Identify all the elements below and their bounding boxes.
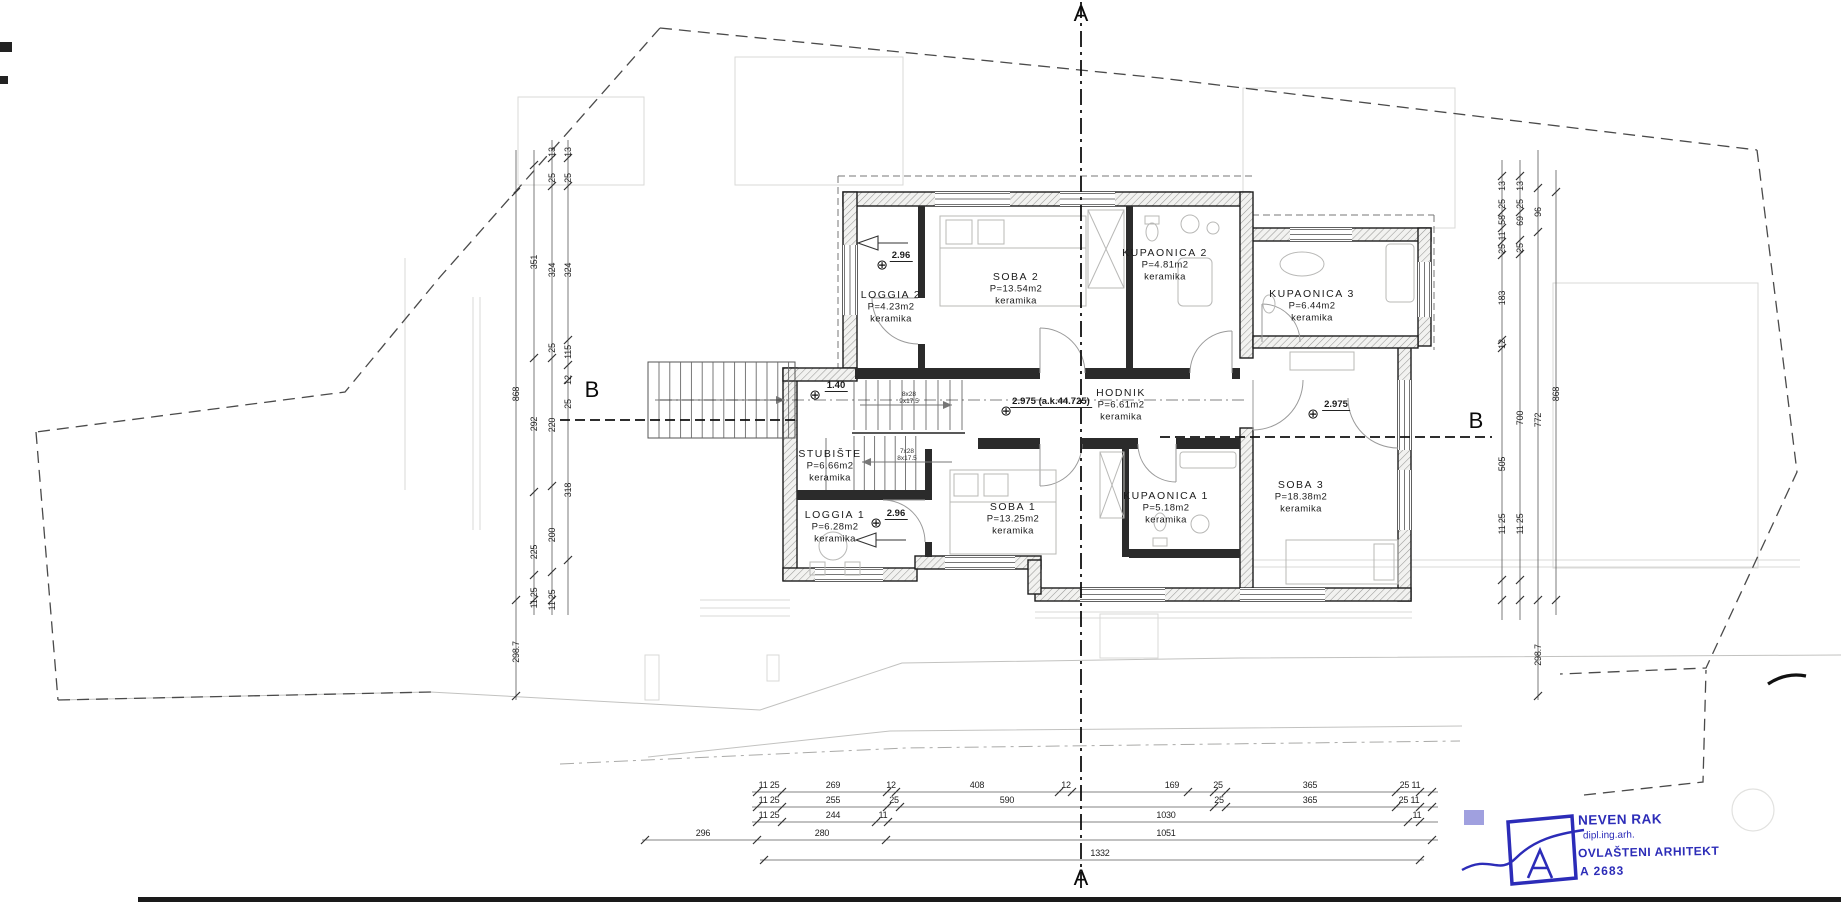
elevation-marker-icon: ⊕ — [809, 387, 821, 404]
room-label-name: KUPAONICA 3 — [1269, 288, 1355, 300]
dimension-value: 11 25 — [759, 810, 780, 820]
dimension-value: 25 — [1515, 243, 1525, 253]
dimension-value: 12 — [1061, 780, 1071, 790]
section-marker-a: A — [1074, 865, 1089, 891]
dimension-value: 200 — [547, 528, 557, 542]
dimension-value: 408 — [970, 780, 984, 790]
room-label-area: P=13.25m2 — [987, 514, 1039, 525]
dimension-value: 365 — [1303, 795, 1317, 805]
stamp-license-title: OVLAŠTENI ARHITEKT — [1578, 844, 1719, 860]
room-label-name: KUPAONICA 1 — [1123, 490, 1209, 502]
dimension-value: 12 — [1497, 339, 1507, 349]
room-label-finish: keramika — [995, 296, 1037, 307]
dimension-value: 269 — [826, 780, 840, 790]
dimension-value: 25 — [1213, 780, 1223, 790]
dimension-value: 700 — [1515, 411, 1525, 425]
section-marker-b: B — [1469, 408, 1484, 434]
room-label-finish: keramika — [1291, 313, 1333, 324]
room-label-finish: keramika — [814, 534, 856, 545]
dimension-value: 505 — [1497, 457, 1507, 471]
dimension-value: 25 — [547, 173, 557, 183]
elevation-value: 1.40 — [825, 380, 848, 392]
room-label-area: P=18.38m2 — [1275, 492, 1327, 503]
dimension-value: 25 — [1497, 244, 1507, 254]
room-label-finish: keramika — [1100, 412, 1142, 423]
dimension-value: 13 — [1497, 181, 1507, 191]
elevation-value: 2.975 — [1322, 399, 1350, 411]
dimension-value: 25 — [889, 795, 899, 805]
elevation-value: 2.975 (a.k.44.725) — [1010, 396, 1092, 408]
text-labels-layer: NEVEN RAK dipl.ing.arh. OVLAŠTENI ARHITE… — [0, 0, 1841, 906]
dimension-value: 1051 — [1156, 828, 1175, 838]
dimension-value: 25 — [1497, 199, 1507, 209]
dimension-value: 25 11 — [1399, 795, 1420, 805]
room-label-area: P=6.66m2 — [807, 461, 854, 472]
room-label-finish: keramika — [1280, 504, 1322, 515]
dimension-value: 255 — [826, 795, 840, 805]
section-marker-a: A — [1074, 1, 1089, 27]
elevation-marker-icon: ⊕ — [870, 515, 882, 532]
dimension-value: 13 — [1515, 181, 1525, 191]
dimension-value: 11 25 — [1497, 514, 1507, 535]
dimension-value: 11 25 — [1515, 514, 1525, 535]
dimension-value: 244 — [826, 810, 840, 820]
dimension-value: 292 — [529, 417, 539, 431]
dimension-value: 25 — [1515, 199, 1525, 209]
room-label-area: P=6.61m2 — [1098, 400, 1145, 411]
section-marker-b: B — [585, 377, 600, 403]
dimension-value: 11 — [1413, 810, 1422, 820]
dimension-value: 280 — [815, 828, 829, 838]
dimension-value: 11 — [879, 810, 888, 820]
dimension-value: 11 25 — [547, 590, 557, 611]
dimension-value: 225 — [529, 545, 539, 559]
room-label-name: LOGGIA 2 — [861, 289, 921, 301]
dimension-value: 12 — [886, 780, 896, 790]
stair-spec: 8x289x17.5 — [899, 391, 919, 405]
room-label-finish: keramika — [1145, 515, 1187, 526]
dimension-value: 13 — [547, 147, 557, 157]
room-label-name: SOBA 1 — [990, 501, 1036, 513]
dimension-value: 220 — [547, 418, 557, 432]
room-label-name: HODNIK — [1096, 387, 1146, 399]
dimension-value: 365 — [1303, 780, 1317, 790]
elevation-value: 2.96 — [885, 508, 908, 520]
room-label-name: SOBA 2 — [993, 271, 1039, 283]
dimension-value: 183 — [1497, 291, 1507, 305]
dimension-value: 115 — [563, 345, 573, 359]
dimension-value: 868 — [1551, 387, 1561, 401]
dimension-value: 25 — [1214, 795, 1224, 805]
room-label-area: P=4.23m2 — [868, 302, 915, 313]
dimension-value: 324 — [563, 263, 573, 277]
dimension-value: 11 25 — [759, 795, 780, 805]
stair-spec: 7x288x17.5 — [897, 448, 917, 462]
room-label-name: KUPAONICA 2 — [1122, 247, 1208, 259]
dimension-value: 69 — [1515, 216, 1525, 226]
dimension-value: 11 25 — [529, 588, 539, 609]
dimension-value: 25 — [547, 343, 557, 353]
floor-plan-sheet: NEVEN RAK dipl.ing.arh. OVLAŠTENI ARHITE… — [0, 0, 1841, 906]
dimension-value: 298.7 — [1533, 644, 1543, 666]
room-label-area: P=4.81m2 — [1142, 260, 1189, 271]
dimension-value: 318 — [563, 483, 573, 497]
dimension-value: 590 — [1000, 795, 1014, 805]
room-label-name: STUBIŠTE — [798, 448, 861, 460]
room-label-area: P=5.18m2 — [1143, 503, 1190, 514]
dimension-value: 772 — [1533, 413, 1543, 427]
room-label-area: P=13.54m2 — [990, 284, 1042, 295]
dimension-value: 96 — [1533, 207, 1543, 217]
dimension-value: 11 25 — [759, 780, 780, 790]
dimension-value: 1030 — [1156, 810, 1175, 820]
dimension-value: 298.7 — [511, 641, 521, 663]
elevation-value: 2.96 — [890, 250, 913, 262]
dimension-value: 58 — [1497, 215, 1507, 225]
room-label-finish: keramika — [870, 314, 912, 325]
dimension-value: 1332 — [1090, 848, 1109, 858]
dimension-value: 296 — [696, 828, 710, 838]
room-label-finish: keramika — [992, 526, 1034, 537]
dimension-value: 324 — [547, 263, 557, 277]
room-label-finish: keramika — [809, 473, 851, 484]
dimension-value: 868 — [511, 387, 521, 401]
stamp-architect-name: NEVEN RAK — [1578, 811, 1662, 827]
dimension-value: 25 — [563, 399, 573, 409]
elevation-marker-icon: ⊕ — [1307, 406, 1319, 423]
room-label-name: LOGGIA 1 — [805, 509, 865, 521]
dimension-value: 11 — [1497, 232, 1507, 241]
dimension-value: 13 — [563, 147, 573, 157]
stamp-architect-degree: dipl.ing.arh. — [1583, 830, 1635, 842]
room-label-area: P=6.44m2 — [1289, 301, 1336, 312]
room-label-finish: keramika — [1144, 272, 1186, 283]
dimension-value: 351 — [529, 255, 539, 269]
stamp-license-number: A 2683 — [1580, 864, 1624, 879]
dimension-value: 12 — [563, 375, 573, 385]
dimension-value: 25 — [563, 173, 573, 183]
dimension-value: 25 11 — [1400, 780, 1421, 790]
dimension-value: 169 — [1165, 780, 1179, 790]
room-label-area: P=6.28m2 — [812, 522, 859, 533]
elevation-marker-icon: ⊕ — [876, 257, 888, 274]
room-label-name: SOBA 3 — [1278, 479, 1324, 491]
